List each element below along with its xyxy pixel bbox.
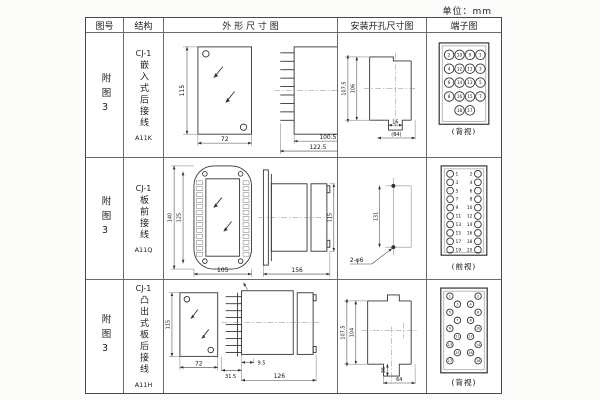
svg-text:12: 12 bbox=[468, 335, 472, 339]
svg-text:5: 5 bbox=[449, 310, 451, 314]
svg-text:6: 6 bbox=[470, 188, 473, 194]
terminal-view-label: (前视) bbox=[452, 261, 477, 271]
svg-text:17: 17 bbox=[456, 239, 462, 245]
svg-text:17: 17 bbox=[467, 108, 473, 113]
svg-text:18: 18 bbox=[457, 108, 463, 113]
outline-drawing-cell: 115 72 bbox=[164, 33, 338, 158]
svg-text:4: 4 bbox=[470, 180, 473, 186]
svg-text:18: 18 bbox=[467, 239, 473, 245]
svg-text:11: 11 bbox=[456, 214, 462, 220]
fig-number-cell: 附图3 bbox=[86, 33, 124, 158]
header-structure-cell: 结构 bbox=[124, 18, 164, 33]
dim-notch-height: 36 bbox=[381, 367, 387, 373]
fig-number-cell: 附图3 bbox=[86, 280, 124, 393]
dim-case-height: 115 bbox=[327, 213, 333, 222]
dim-step-depth: 9.5 bbox=[257, 360, 265, 366]
terminal-block: 1234567891011121314151617181920 bbox=[447, 170, 482, 253]
fig-number-cell: 附图3 bbox=[86, 158, 124, 280]
header-fig-cell: 图号 bbox=[86, 18, 124, 33]
unit-label: 单位：mm bbox=[442, 4, 492, 17]
fig-number-text: 附图3 bbox=[98, 314, 112, 359]
terminal-drawing-a11k: 210914121136141358161571817 (背视) bbox=[427, 33, 501, 157]
svg-text:3: 3 bbox=[479, 66, 482, 71]
svg-text:16: 16 bbox=[467, 230, 473, 236]
svg-text:15: 15 bbox=[455, 351, 459, 355]
svg-text:8: 8 bbox=[469, 319, 471, 323]
svg-text:9: 9 bbox=[469, 52, 472, 57]
dim-front-height: 115 bbox=[179, 85, 186, 97]
outline-drawing-cell: 140 125 105 bbox=[164, 158, 338, 280]
side-view: 9.5 31.5 126 bbox=[222, 283, 321, 381]
dim-plate-height: 140 bbox=[168, 213, 174, 222]
manual-page: 单位：mm 图号 结构 外 形 尺 寸 图 安装开孔尺寸图 端子图 附图3 CJ… bbox=[0, 0, 600, 400]
svg-text:10: 10 bbox=[476, 327, 480, 331]
dim-body-depth: 126 bbox=[274, 373, 286, 380]
svg-text:1: 1 bbox=[479, 52, 482, 57]
svg-text:15: 15 bbox=[467, 94, 473, 99]
dim-install-outer: 107.5 bbox=[340, 325, 346, 339]
front-view: 115 72 bbox=[165, 293, 217, 371]
svg-text:11: 11 bbox=[455, 335, 459, 339]
svg-text:10: 10 bbox=[457, 52, 463, 57]
outline-drawing-cell: 115 72 bbox=[164, 280, 338, 393]
dim-front-width: 72 bbox=[221, 136, 229, 143]
terminal-drawing-cell: 210914121136141358161571817 (背视) bbox=[427, 33, 501, 158]
outline-drawing-a11k: 115 72 bbox=[164, 33, 337, 157]
svg-text:3: 3 bbox=[456, 302, 458, 306]
svg-text:4: 4 bbox=[448, 66, 451, 71]
dim-total-depth: 122.5 bbox=[309, 144, 326, 151]
dim-inner-height: 125 bbox=[177, 213, 183, 222]
terminal-block: 210914121136141358161571817 bbox=[444, 50, 485, 115]
terminal-strips bbox=[196, 181, 249, 256]
dim-opening-width: 64 bbox=[396, 377, 402, 383]
fig-number-text: 附图3 bbox=[98, 196, 112, 241]
hole-spec-label: 2-φ6 bbox=[350, 257, 364, 264]
header-install-cell: 安装开孔尺寸图 bbox=[338, 18, 427, 33]
structure-name: 板前接线 bbox=[137, 195, 150, 241]
dim-total-depth: 156 bbox=[291, 267, 303, 274]
structure-cell: CJ-1 嵌入式后接线 A11K bbox=[124, 33, 164, 158]
structure-cell: CJ-1 凸出式板后接线 A11H bbox=[124, 280, 164, 393]
terminal-view-label: (背视) bbox=[452, 126, 477, 136]
terminal-drawing-a11h: 123456789101112131415161718 (背视) bbox=[427, 280, 501, 393]
svg-text:17: 17 bbox=[448, 359, 452, 363]
svg-text:12: 12 bbox=[457, 66, 463, 71]
svg-text:9: 9 bbox=[456, 205, 459, 211]
install-drawing-a11h: 107.5 104 36 64 bbox=[338, 280, 426, 393]
model-label: CJ-1 bbox=[136, 49, 152, 58]
model-label: CJ-1 bbox=[136, 284, 152, 293]
svg-text:9: 9 bbox=[449, 327, 451, 331]
install-drawing-cell: 131 2-φ6 bbox=[338, 158, 427, 280]
header-terminal-cell: 端子图 bbox=[427, 18, 501, 33]
svg-text:2: 2 bbox=[470, 171, 473, 177]
svg-text:5: 5 bbox=[479, 80, 482, 85]
svg-text:1: 1 bbox=[449, 294, 451, 298]
svg-text:2: 2 bbox=[477, 294, 479, 298]
dim-front-width: 72 bbox=[195, 360, 203, 367]
structure-code: A11K bbox=[135, 134, 152, 142]
svg-text:18: 18 bbox=[476, 359, 480, 363]
front-view: 115 72 bbox=[179, 47, 251, 146]
svg-text:16: 16 bbox=[457, 94, 463, 99]
dim-body-depth: 100.5 bbox=[319, 134, 336, 141]
svg-text:19: 19 bbox=[456, 247, 462, 253]
dim-install-inner: 104 bbox=[349, 328, 355, 337]
terminal-drawing-a11q: 1234567891011121314151617181920 (前视) bbox=[427, 158, 501, 279]
side-view: 100.5 122.5 35 bbox=[274, 36, 337, 154]
outline-drawing-a11h: 115 72 bbox=[164, 280, 337, 393]
install-drawing-cell: 107.5 104 36 64 bbox=[338, 280, 427, 393]
svg-text:2: 2 bbox=[448, 52, 451, 57]
svg-text:1: 1 bbox=[456, 171, 459, 177]
structure-code: A11H bbox=[135, 381, 153, 389]
svg-text:14: 14 bbox=[476, 343, 480, 347]
dim-plate-width: 105 bbox=[217, 267, 229, 274]
terminal-drawing-cell: 123456789101112131415161718 (背视) bbox=[427, 280, 501, 393]
install-drawing-a11q: 131 2-φ6 bbox=[338, 158, 426, 279]
front-view: 140 125 105 bbox=[168, 166, 252, 277]
install-drawing-a11k: 107.5 106 16 (64) bbox=[338, 33, 426, 157]
svg-text:7: 7 bbox=[456, 319, 458, 323]
spec-table: 图号 结构 外 形 尺 寸 图 安装开孔尺寸图 端子图 附图3 CJ-1 嵌入式… bbox=[85, 17, 502, 394]
svg-text:6: 6 bbox=[477, 310, 479, 314]
terminal-drawing-cell: 1234567891011121314151617181920 (前视) bbox=[427, 158, 501, 280]
header-outline-cell: 外 形 尺 寸 图 bbox=[164, 18, 338, 33]
outline-drawing-a11q: 140 125 105 bbox=[164, 158, 337, 279]
dim-install-inner: 106 bbox=[350, 84, 356, 93]
svg-text:13: 13 bbox=[448, 343, 452, 347]
svg-text:8: 8 bbox=[448, 94, 451, 99]
dim-opening-width: (64) bbox=[391, 132, 401, 138]
svg-text:7: 7 bbox=[456, 197, 459, 203]
svg-text:14: 14 bbox=[467, 222, 473, 228]
side-view: 156 115 bbox=[258, 170, 334, 277]
svg-text:11: 11 bbox=[467, 66, 473, 71]
dim-hole-spacing: 131 bbox=[374, 212, 380, 221]
structure-name: 凸出式板后接线 bbox=[137, 295, 150, 376]
fig-number-text: 附图3 bbox=[98, 73, 112, 118]
dim-pin-depth: 31.5 bbox=[225, 374, 236, 380]
structure-cell: CJ-1 板前接线 A11Q bbox=[124, 158, 164, 280]
svg-text:6: 6 bbox=[448, 80, 451, 85]
svg-text:10: 10 bbox=[467, 205, 473, 211]
svg-text:8: 8 bbox=[470, 197, 473, 203]
terminal-view-label: (背视) bbox=[451, 377, 476, 387]
svg-text:5: 5 bbox=[456, 188, 459, 194]
dim-front-height: 115 bbox=[165, 320, 171, 329]
svg-text:15: 15 bbox=[456, 230, 462, 236]
svg-text:12: 12 bbox=[467, 214, 473, 220]
svg-text:3: 3 bbox=[456, 180, 459, 186]
svg-text:13: 13 bbox=[467, 80, 473, 85]
structure-code: A11Q bbox=[135, 246, 153, 254]
terminal-block: 123456789101112131415161718 bbox=[447, 293, 482, 364]
install-drawing-cell: 107.5 106 16 (64) bbox=[338, 33, 427, 158]
dim-install-outer: 107.5 bbox=[341, 82, 347, 96]
model-label: CJ-1 bbox=[136, 184, 152, 193]
svg-text:14: 14 bbox=[457, 80, 463, 85]
svg-text:4: 4 bbox=[469, 302, 471, 306]
dim-notch-width: 16 bbox=[392, 120, 398, 126]
structure-name: 嵌入式后接线 bbox=[137, 60, 150, 129]
svg-text:13: 13 bbox=[456, 222, 462, 228]
svg-text:7: 7 bbox=[479, 94, 482, 99]
svg-text:16: 16 bbox=[468, 351, 472, 355]
svg-text:20: 20 bbox=[467, 247, 473, 253]
